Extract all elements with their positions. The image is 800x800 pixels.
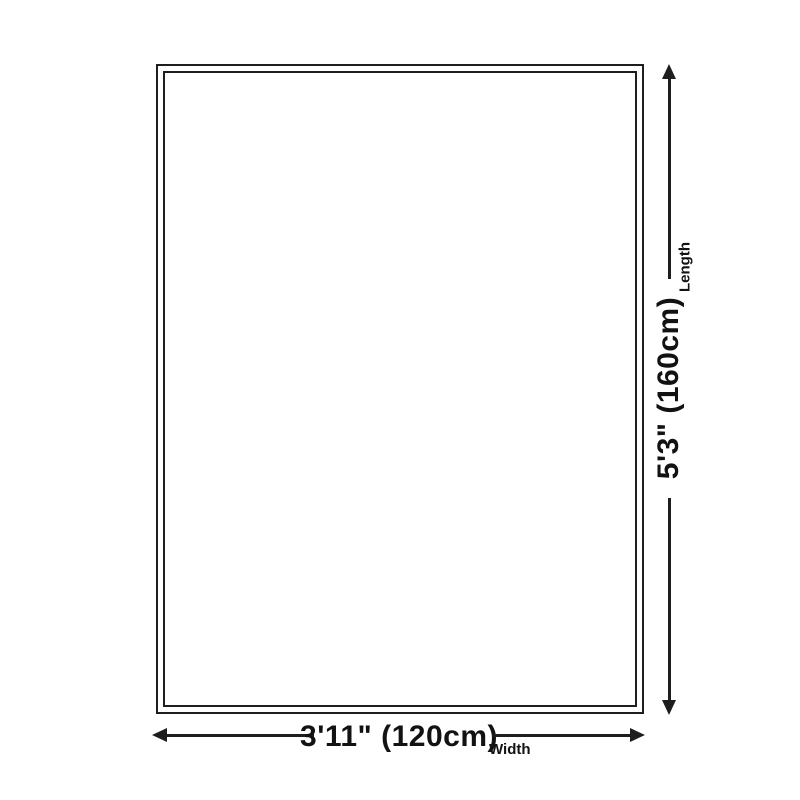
length-label: Length bbox=[677, 242, 694, 292]
size-diagram: Length 5'3" (160cm) 3'11" (120cm) Width bbox=[0, 0, 800, 800]
length-dimension-line-top bbox=[668, 78, 671, 279]
length-dimension-line-bottom bbox=[668, 498, 671, 702]
width-dimension-line-left bbox=[166, 734, 314, 737]
rug-outline-outer bbox=[156, 64, 644, 714]
arrow-left-icon bbox=[152, 728, 167, 742]
width-label: Width bbox=[489, 741, 531, 758]
width-value: 3'11" (120cm) bbox=[300, 720, 498, 754]
arrow-up-icon bbox=[662, 64, 676, 79]
length-value: 5'3" (160cm) bbox=[652, 297, 686, 479]
arrow-down-icon bbox=[662, 700, 676, 715]
arrow-right-icon bbox=[630, 728, 645, 742]
rug-outline-inner bbox=[163, 71, 637, 707]
width-dimension-line-right bbox=[492, 734, 632, 737]
